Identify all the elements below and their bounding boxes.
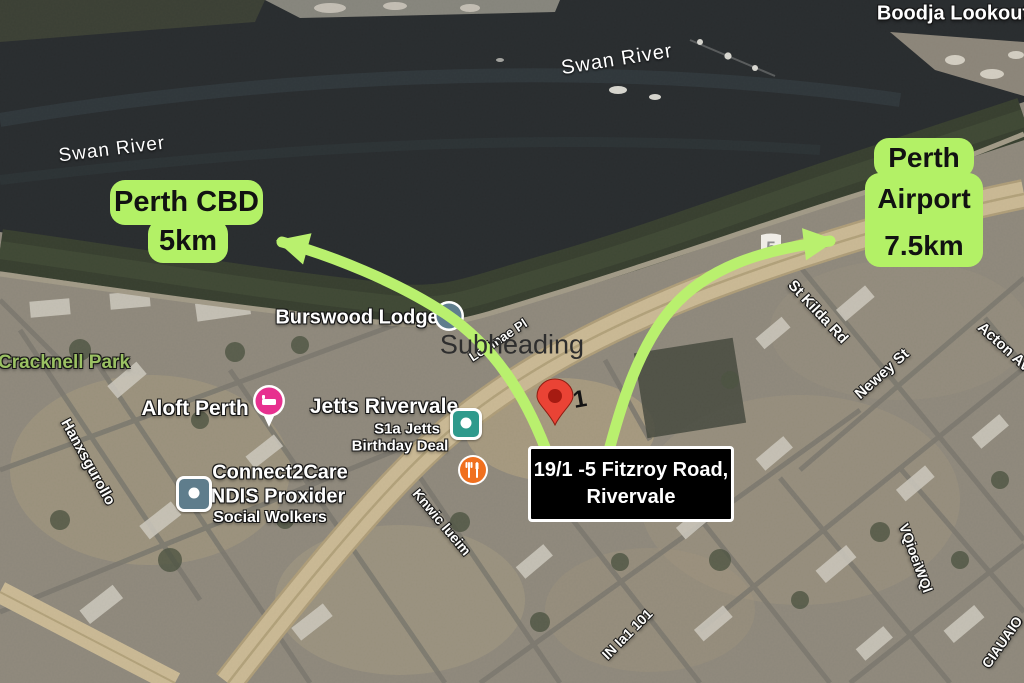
connect2care-poi-icon[interactable] (176, 476, 212, 512)
lodging-poi-icon[interactable] (433, 300, 465, 332)
perth-cbd-title: Perth CBD (110, 180, 263, 225)
burswood-lodge-label: Burswood Lodge (275, 307, 438, 330)
perth-airport-distance: 7.5km (865, 225, 983, 267)
route-shield-number: 5 (766, 238, 775, 257)
boodja-lookout-label: Boodja Lookout (877, 3, 1024, 26)
jetts-subline-2: Birthday Deal (352, 438, 449, 455)
restaurant-poi-icon[interactable] (457, 454, 489, 486)
perth-airport-callout: Perth Airport 7.5km (865, 138, 983, 267)
perth-cbd-callout: Perth CBD 5km (110, 180, 263, 263)
connect2care-label-1: Connect2Care (212, 462, 348, 485)
subheading-placeholder-text: Subheading (440, 330, 584, 361)
aloft-perth-label: Aloft Perth (141, 397, 248, 421)
jetts-rivervale-label: Jetts Rivervale (310, 395, 458, 419)
location-pin[interactable] (532, 378, 578, 428)
perth-cbd-distance: 5km (148, 219, 228, 263)
connect2care-label-2: NDIS Proxider (211, 486, 345, 509)
address-callout: 19/1 -5 Fitzroy Road, Rivervale (528, 446, 734, 522)
route-5-shield-icon: 5 (758, 232, 784, 262)
poi-dot (461, 417, 472, 428)
aloft-hotel-pin-icon[interactable] (251, 384, 287, 428)
perth-airport-line2: Airport (865, 173, 983, 225)
address-line-2: Rivervale (587, 484, 676, 511)
poi-dot (189, 487, 200, 498)
perth-airport-line1: Perth (874, 138, 974, 178)
address-line-1: 19/1 -5 Fitzroy Road, (534, 457, 729, 484)
map-screenshot: Boodja Lookout Swan River Swan River Cra… (0, 0, 1024, 683)
jetts-subline-1: S1a Jetts (374, 421, 440, 438)
connect2care-label-3: Social Wolkers (213, 509, 327, 527)
cracknell-park-label: Cracknell Park (0, 352, 130, 374)
gym-poi-icon[interactable] (450, 408, 482, 440)
